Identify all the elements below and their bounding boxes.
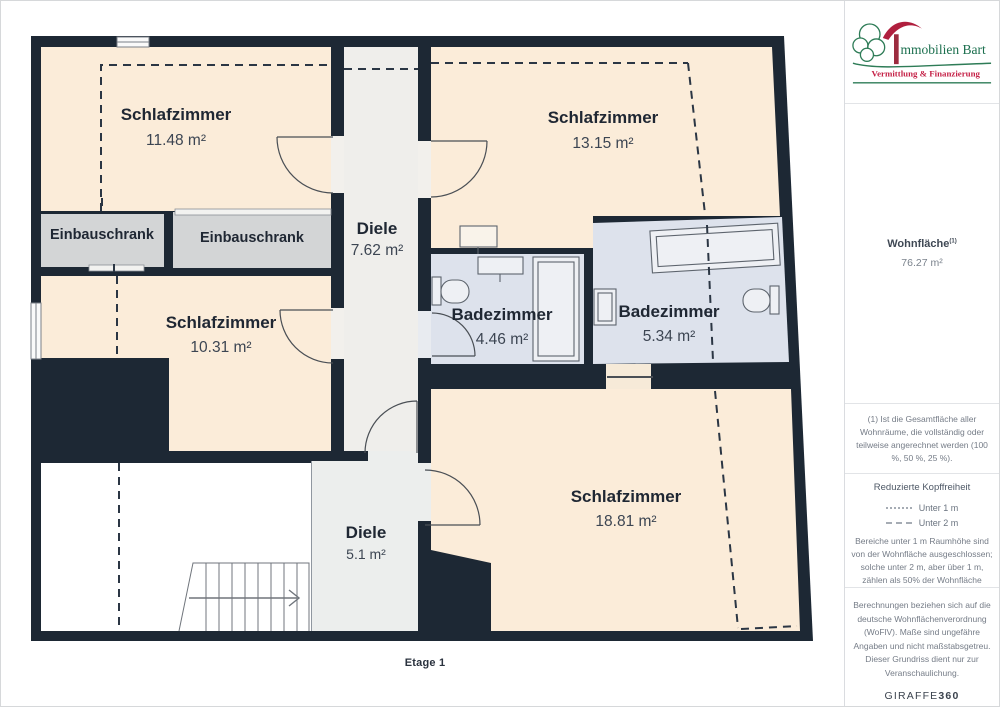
logo-section: mmobilien Bart Vermittlung & Finanzierun…	[845, 1, 999, 104]
living-area-footnote-ref: (1)	[949, 238, 956, 244]
living-area-value: 76.27 m²	[901, 257, 942, 269]
room-label: Schlafzimmer	[121, 105, 232, 124]
living-area-label: Wohnfläche(1)	[887, 238, 956, 250]
logo-tree-icon	[853, 24, 885, 61]
room-area: 7.62 m²	[351, 242, 404, 259]
legend-section: Reduzierte Kopffreiheit Unter 1 m Unter …	[845, 474, 999, 588]
toilet-icon	[743, 289, 770, 312]
floorplan-page: Schlafzimmer 11.48 m² Schlafzimmer 13.15…	[0, 0, 1000, 707]
room-label: Schlafzimmer	[548, 108, 659, 127]
info-sidebar: mmobilien Bart Vermittlung & Finanzierun…	[844, 1, 999, 706]
room-area: 18.81 m²	[595, 513, 656, 530]
logo-underline	[853, 63, 991, 67]
disclaimer-section: Berechnungen beziehen sich auf die deuts…	[845, 588, 999, 705]
room-label: Diele	[346, 523, 387, 542]
dashed-line-icon	[886, 522, 912, 524]
toilet-icon	[441, 280, 469, 303]
room-label: Diele	[357, 219, 398, 238]
legend-title: Reduzierte Kopffreiheit	[851, 482, 993, 493]
toilet-icon	[770, 286, 779, 314]
room-schlafzimmer-1	[41, 47, 331, 211]
room-label: Einbauschrank	[200, 230, 305, 246]
room-label: Einbauschrank	[50, 227, 155, 243]
room-label: Badezimmer	[618, 302, 719, 321]
disclaimer-text: Berechnungen beziehen sich auf die deuts…	[853, 599, 991, 680]
room-area: 4.46 m²	[476, 331, 529, 348]
room-area: 13.15 m²	[572, 135, 633, 152]
logo-trunk-icon	[894, 34, 899, 64]
legend-note: Bereiche unter 1 m Raumhöhe sind von der…	[851, 535, 993, 587]
room-label: Badezimmer	[451, 305, 552, 324]
logo-tagline: Vermittlung & Finanzierung	[872, 68, 981, 78]
room-label: Schlafzimmer	[571, 487, 682, 506]
floorplan-drawing: Schlafzimmer 11.48 m² Schlafzimmer 13.15…	[1, 1, 834, 707]
room-area: 5.34 m²	[643, 328, 696, 345]
living-area-section: Wohnfläche(1) 76.27 m²	[845, 104, 999, 404]
floor-label: Etage 1	[405, 657, 446, 669]
room-area: 10.31 m²	[190, 339, 251, 356]
door-gap	[418, 463, 431, 521]
room-area: 5.1 m²	[346, 546, 386, 562]
door-gap	[331, 136, 344, 193]
sink-icon	[478, 257, 523, 274]
brand-logo: GIRAFFE360	[853, 690, 991, 704]
bathtub-icon	[650, 223, 780, 273]
door-gap	[418, 311, 431, 358]
logo-roof-icon	[883, 22, 922, 40]
legend-item-under-2m: Unter 2 m	[851, 515, 993, 530]
room-area: 11.48 m²	[146, 132, 206, 149]
door-gap	[368, 451, 418, 461]
door-gap	[418, 141, 431, 198]
logo-title: mmobilien Bart	[901, 42, 986, 57]
footnote-section: (1) Ist die Gesamtfläche aller Wohnräume…	[845, 404, 999, 474]
window-icon	[117, 37, 149, 47]
dotted-line-icon	[886, 507, 912, 509]
door-gap	[331, 308, 344, 359]
toilet-icon	[432, 277, 441, 305]
company-logo: mmobilien Bart Vermittlung & Finanzierun…	[847, 10, 997, 94]
room-label: Schlafzimmer	[166, 313, 277, 332]
window-icon	[31, 303, 41, 359]
legend-item-under-1m: Unter 1 m	[851, 500, 993, 515]
sink-icon	[594, 289, 616, 325]
